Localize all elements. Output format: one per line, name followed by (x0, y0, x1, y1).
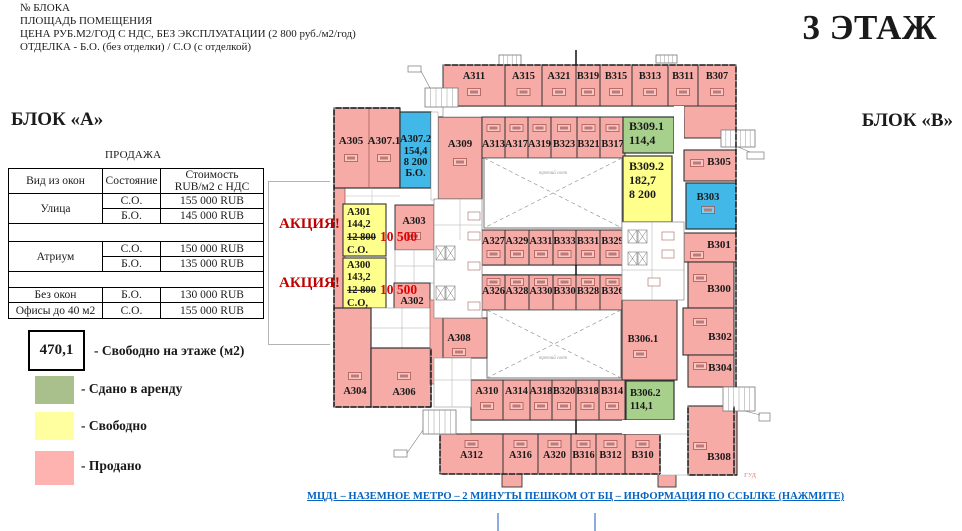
svg-text:В321: В321 (577, 139, 599, 150)
svg-text:В304: В304 (708, 362, 732, 374)
svg-text:144,2: 144,2 (347, 219, 371, 230)
svg-text:В301: В301 (707, 239, 731, 251)
svg-text:114,4: 114,4 (629, 133, 655, 147)
svg-text:8 200: 8 200 (629, 187, 656, 201)
svg-text:А302: А302 (400, 296, 423, 307)
svg-text:А326: А326 (482, 286, 505, 297)
svg-text:В311: В311 (672, 71, 694, 82)
svg-text:12 800: 12 800 (347, 285, 376, 296)
svg-text:С.О.: С.О. (347, 245, 368, 256)
svg-text:А327: А327 (482, 236, 505, 247)
svg-text:В307: В307 (706, 71, 728, 82)
svg-text:В308: В308 (707, 451, 731, 463)
svg-text:А316: А316 (509, 450, 532, 461)
svg-text:А304: А304 (343, 386, 367, 397)
svg-text:В317: В317 (601, 139, 623, 150)
svg-text:третий свет: третий свет (539, 355, 568, 361)
svg-text:143,2: 143,2 (347, 272, 371, 283)
svg-text:В329: В329 (601, 236, 623, 247)
svg-text:А300: А300 (347, 260, 370, 271)
svg-text:С.О,: С.О, (347, 298, 368, 309)
svg-text:В319: В319 (577, 71, 599, 82)
svg-text:В300: В300 (707, 283, 731, 295)
svg-text:В306.2: В306.2 (630, 388, 661, 399)
svg-text:В326: В326 (601, 286, 623, 297)
svg-text:114,1: 114,1 (630, 401, 653, 412)
svg-text:8 200: 8 200 (404, 157, 428, 168)
svg-text:В316: В316 (572, 450, 594, 461)
svg-text:10 500: 10 500 (380, 282, 417, 297)
svg-text:В310: В310 (631, 450, 653, 461)
svg-text:А307.1: А307.1 (368, 135, 401, 147)
svg-text:А310: А310 (476, 386, 499, 397)
svg-text:Б.О.: Б.О. (405, 168, 426, 179)
svg-text:В333: В333 (553, 236, 575, 247)
svg-text:А328: А328 (506, 286, 529, 297)
svg-text:В302: В302 (708, 331, 732, 343)
svg-text:В331: В331 (577, 236, 599, 247)
svg-text:В328: В328 (577, 286, 599, 297)
svg-text:А311: А311 (463, 71, 485, 82)
svg-text:ГУД: ГУД (744, 473, 757, 479)
svg-text:В303: В303 (697, 192, 720, 203)
svg-text:В314: В314 (601, 386, 623, 397)
svg-text:А329: А329 (506, 236, 529, 247)
svg-text:154,4: 154,4 (404, 146, 428, 157)
svg-text:А321: А321 (548, 71, 571, 82)
svg-text:А306: А306 (392, 387, 415, 398)
svg-text:В305: В305 (707, 156, 731, 168)
svg-text:В309.2: В309.2 (629, 159, 664, 173)
svg-text:А320: А320 (543, 450, 566, 461)
svg-text:182,7: 182,7 (629, 173, 656, 187)
svg-text:В318: В318 (576, 386, 598, 397)
svg-text:А319: А319 (528, 139, 551, 150)
svg-text:В323: В323 (553, 139, 575, 150)
svg-text:А307.2: А307.2 (400, 134, 431, 145)
svg-text:третий свет: третий свет (539, 170, 568, 176)
svg-text:А331: А331 (530, 236, 553, 247)
svg-text:А303: А303 (402, 216, 425, 227)
svg-text:12 800: 12 800 (347, 232, 376, 243)
svg-text:А308: А308 (447, 333, 470, 344)
svg-text:В312: В312 (599, 450, 621, 461)
svg-text:В315: В315 (605, 71, 627, 82)
svg-text:В320: В320 (553, 386, 575, 397)
svg-text:10 500: 10 500 (380, 229, 417, 244)
svg-text:А315: А315 (512, 71, 535, 82)
svg-text:В309.1: В309.1 (629, 119, 664, 133)
svg-text:А309: А309 (448, 138, 473, 150)
svg-text:А305: А305 (339, 135, 364, 147)
svg-text:А313: А313 (482, 139, 505, 150)
svg-text:В313: В313 (639, 71, 661, 82)
svg-text:В330: В330 (553, 286, 575, 297)
svg-text:А314: А314 (505, 386, 528, 397)
svg-text:А330: А330 (530, 286, 553, 297)
svg-text:В306.1: В306.1 (628, 334, 659, 345)
svg-text:А312: А312 (460, 450, 483, 461)
svg-text:А318: А318 (530, 386, 553, 397)
svg-text:А317: А317 (505, 139, 528, 150)
svg-text:А301: А301 (347, 207, 370, 218)
